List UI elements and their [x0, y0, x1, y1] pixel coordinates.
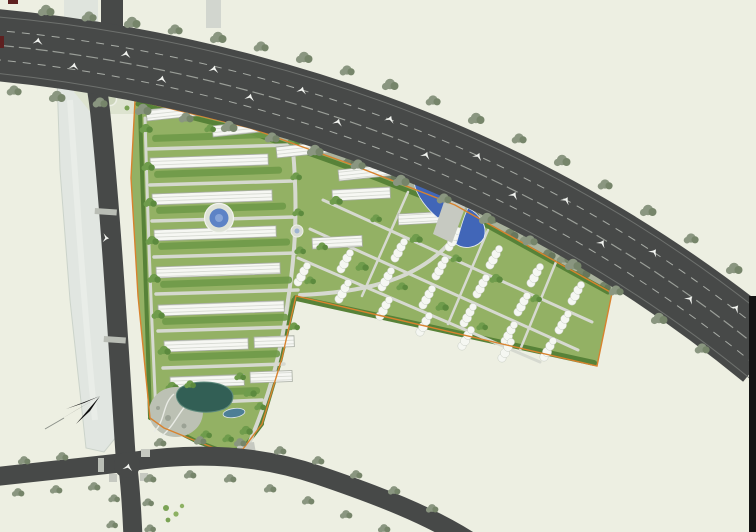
apartment-building: [250, 371, 292, 383]
border-strip: [749, 296, 756, 532]
small-plaza: [291, 225, 303, 237]
border-mark: [0, 36, 4, 48]
rock: [156, 406, 160, 410]
tree: [125, 106, 130, 111]
site-plan-image: [0, 0, 756, 532]
plaza-center: [295, 229, 300, 234]
shrub: [163, 505, 169, 511]
shrub: [180, 504, 184, 508]
side-lane-stub: [206, 0, 221, 28]
intersection: [114, 452, 140, 478]
rock: [182, 424, 187, 429]
corner-pavement: [141, 449, 150, 457]
apartment-building: [254, 336, 294, 348]
crosswalk: [98, 458, 104, 472]
shrub: [173, 511, 178, 516]
circular-pool-plaza: [205, 204, 234, 233]
corner-pavement: [109, 474, 117, 482]
border-mark: [8, 0, 18, 4]
rock: [165, 415, 171, 421]
shrub: [166, 518, 171, 523]
master-plan-canvas: [0, 0, 756, 532]
pool-center: [215, 214, 223, 222]
